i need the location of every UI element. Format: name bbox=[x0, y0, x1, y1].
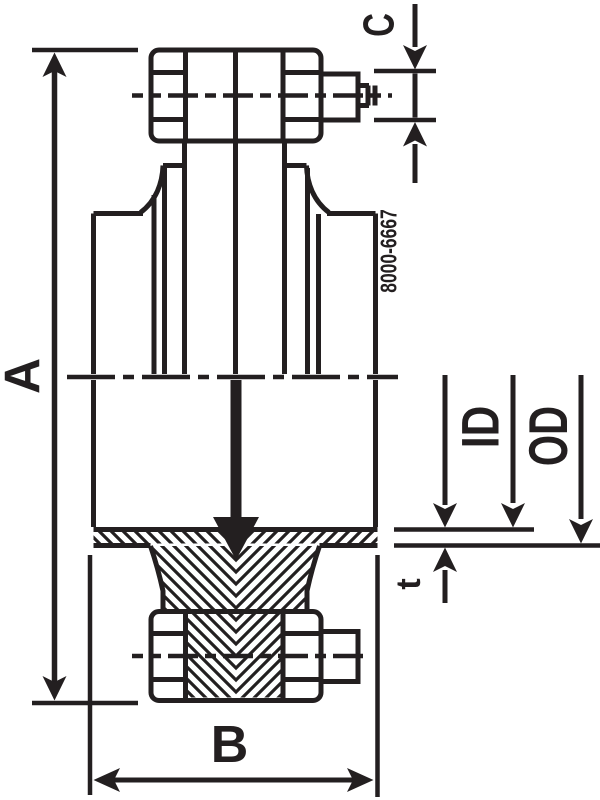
svg-text:t: t bbox=[390, 578, 428, 589]
svg-text:ID: ID bbox=[452, 406, 511, 448]
svg-text:8000-6667: 8000-6667 bbox=[377, 209, 402, 293]
svg-text:B: B bbox=[211, 716, 249, 774]
svg-text:A: A bbox=[0, 358, 51, 394]
svg-text:C: C bbox=[355, 13, 404, 37]
svg-text:OD: OD bbox=[518, 406, 580, 466]
